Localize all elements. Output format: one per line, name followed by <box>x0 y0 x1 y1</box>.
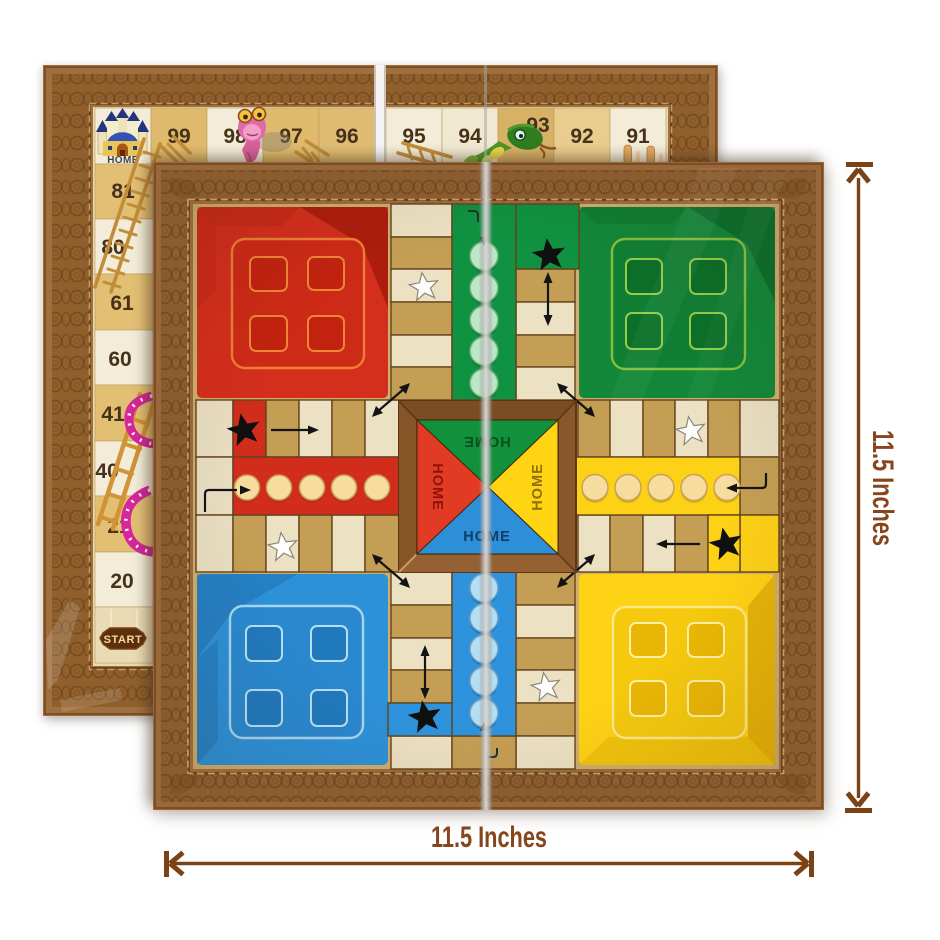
svg-text:94: 94 <box>458 125 482 148</box>
svg-text:99: 99 <box>167 125 190 148</box>
svg-text:61: 61 <box>110 292 134 315</box>
svg-text:20: 20 <box>110 570 133 593</box>
svg-text:11.5 Inches: 11.5 Inches <box>866 430 899 546</box>
svg-text:START: START <box>104 634 143 646</box>
svg-text:92: 92 <box>570 125 593 148</box>
svg-text:41: 41 <box>101 403 125 426</box>
svg-text:91: 91 <box>626 125 650 148</box>
svg-text:96: 96 <box>335 125 358 148</box>
svg-text:11.5 Inches: 11.5 Inches <box>431 821 547 854</box>
svg-text:60: 60 <box>108 348 131 371</box>
